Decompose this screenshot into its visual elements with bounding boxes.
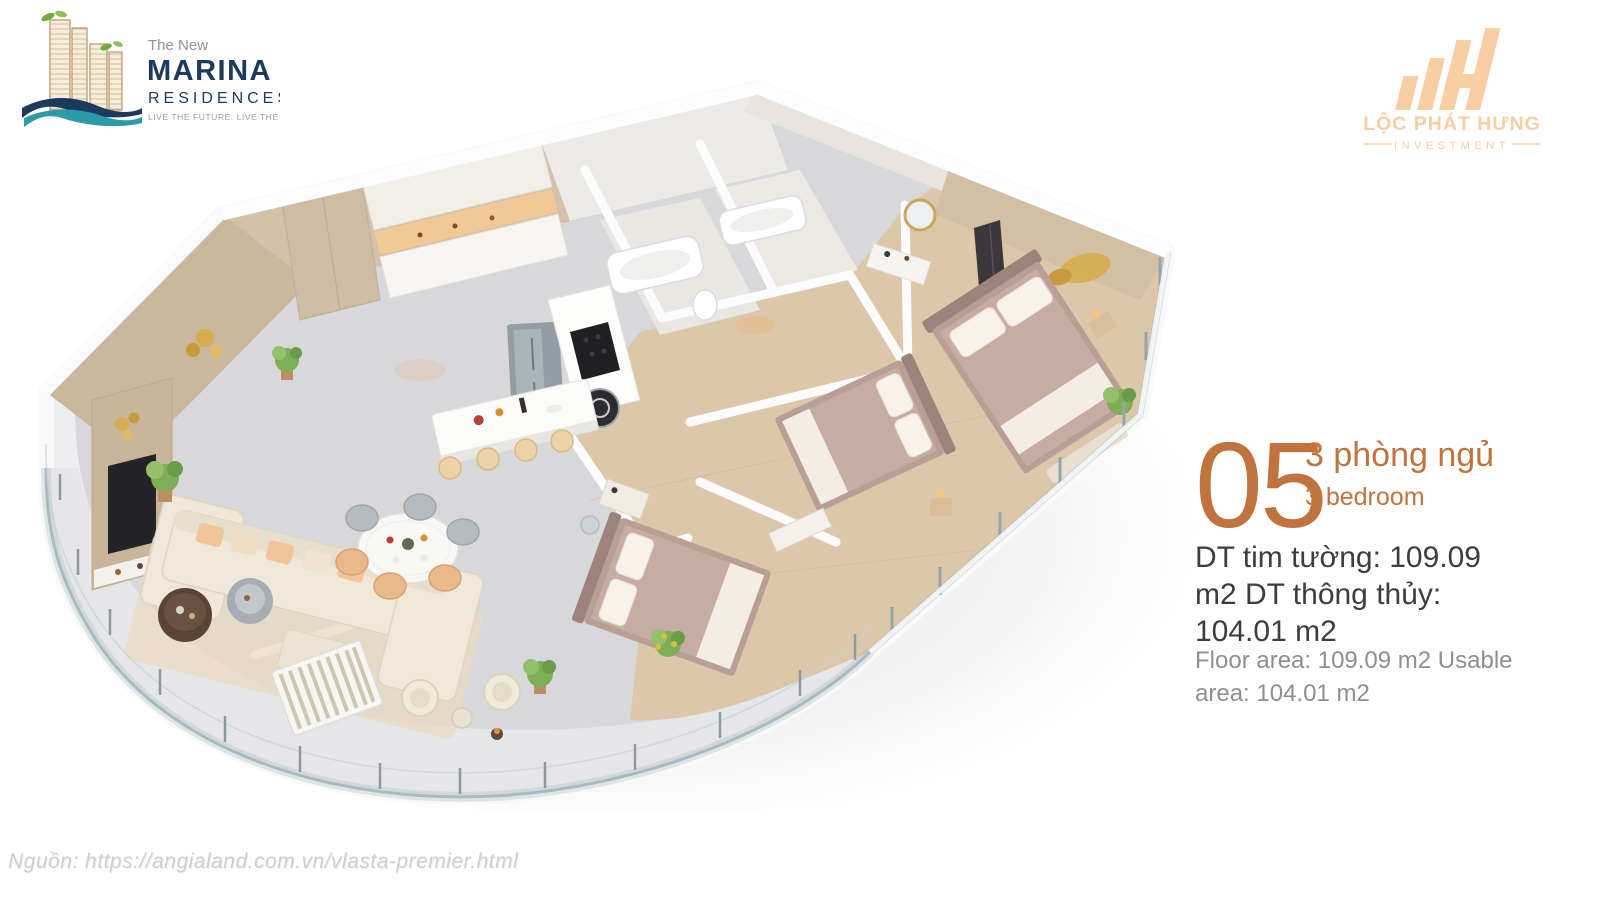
unit-area-english: Floor area: 109.09 m2 Usable area: 104.0… (1195, 645, 1517, 710)
bottle (453, 224, 458, 229)
fire-pit (491, 728, 503, 740)
unit-area-vietnamese: DT tim tường: 109.09 m2 DT thông thủy: 1… (1195, 540, 1495, 651)
decor (115, 569, 121, 575)
floorplan-3d-image (0, 70, 1200, 810)
unit-bedrooms-en: 3 bedroom (1305, 483, 1494, 512)
lph-name: LỘC PHÁT HƯNG (1363, 111, 1541, 135)
light-glow (735, 316, 775, 334)
outdoor-chair (484, 674, 520, 710)
burner (590, 352, 595, 357)
round-mirror (905, 200, 935, 230)
source-watermark: Nguồn: https://angialand.com.vn/vlasta-p… (8, 850, 518, 874)
brand-pre-title: The New (148, 37, 208, 54)
bottle (490, 216, 495, 221)
lph-sub: INVESTMENT (1394, 140, 1510, 152)
burner (584, 338, 589, 343)
decor (137, 563, 143, 569)
desk-chair (581, 516, 599, 534)
toilet (693, 290, 717, 320)
burner (602, 349, 607, 354)
unit-type: 3 phòng ngủ 3 bedroom (1305, 436, 1494, 512)
light-glow (394, 359, 446, 381)
outdoor-table (452, 708, 472, 728)
floorplan-marketing-slide: The New MARINA RESIDENCES LIVE THE FUTUR… (0, 0, 1600, 900)
coffee-table (227, 578, 273, 624)
burner (596, 335, 601, 340)
bottle (418, 233, 423, 238)
outdoor-chair (402, 680, 438, 716)
loc-phat-hung-logo: LỘC PHÁT HƯNG INVESTMENT (1352, 12, 1552, 152)
unit-bedrooms-vi: 3 phòng ngủ (1305, 436, 1494, 475)
coffee-table (158, 588, 212, 642)
lph-monogram-icon (1395, 28, 1500, 110)
